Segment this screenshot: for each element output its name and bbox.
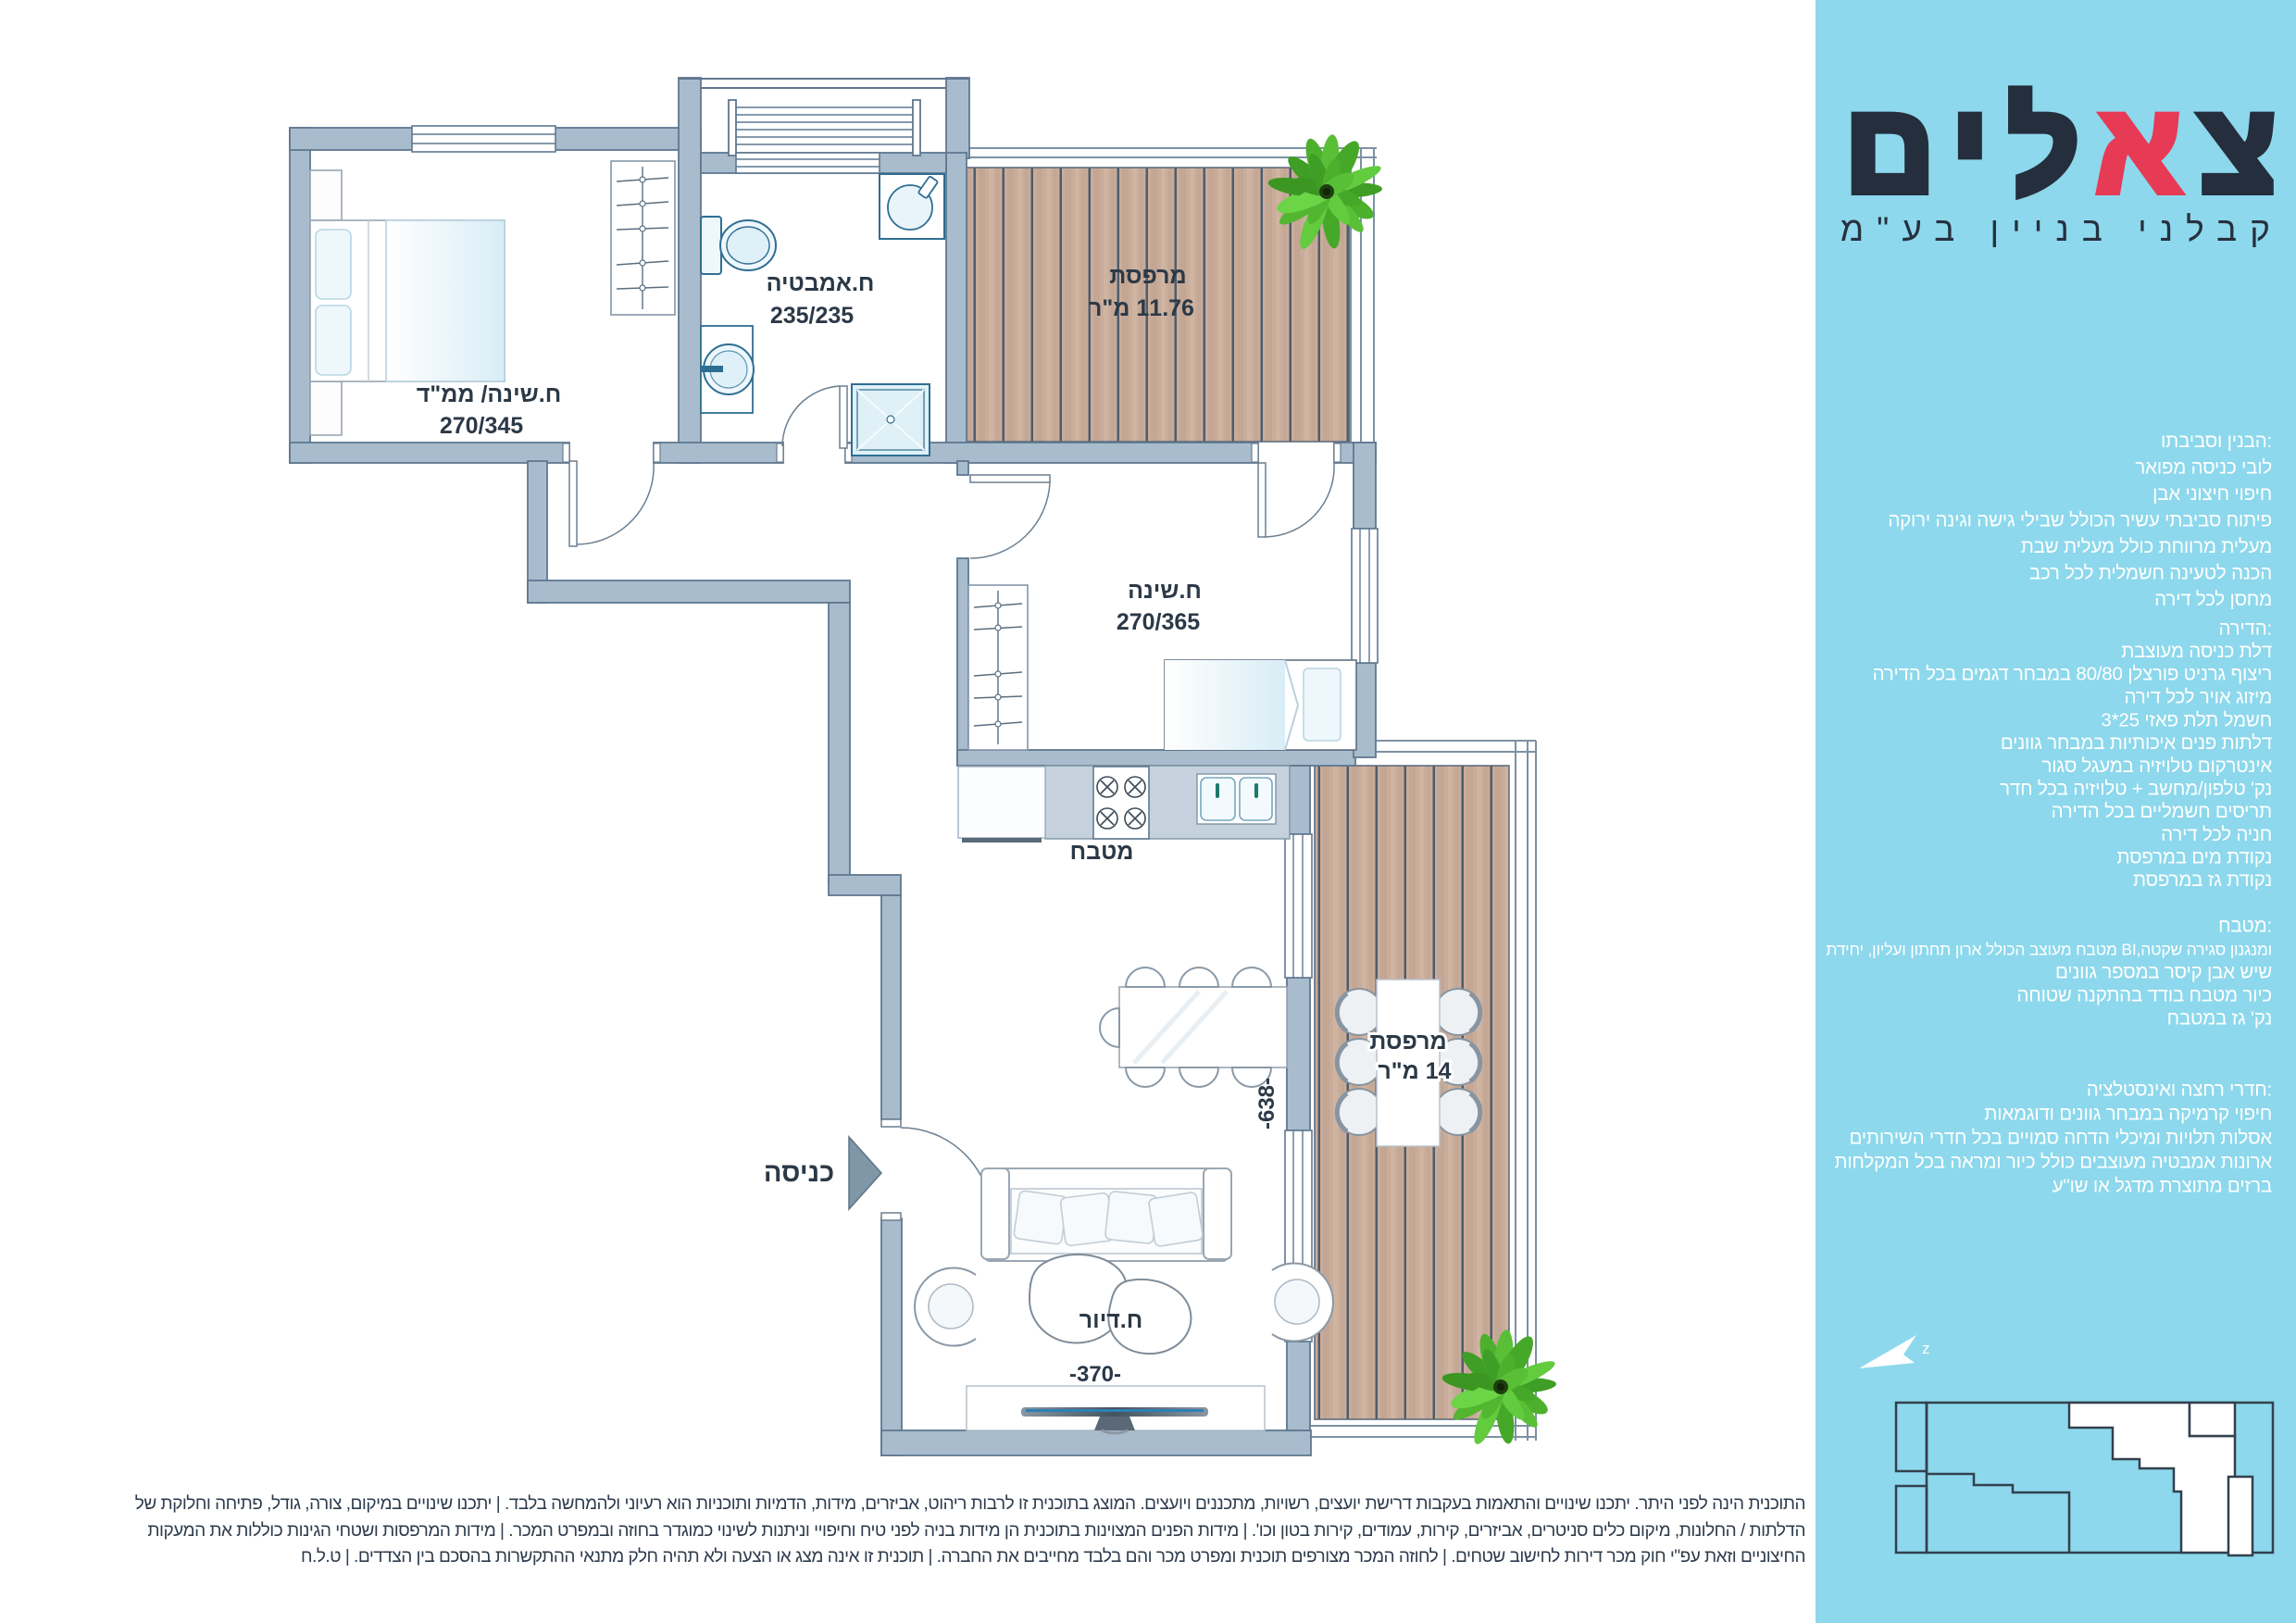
svg-text:החיצוניים וזאת עפ"י חוק מכר די: החיצוניים וזאת עפ"י חוק מכר דירות לחישוב… xyxy=(301,1547,1805,1567)
svg-text:-638-: -638- xyxy=(1254,1078,1279,1130)
svg-text:ריצוף גרניט פורצלן 80/80 במבחר: ריצוף גרניט פורצלן 80/80 במבחר דגמים בכל… xyxy=(1873,664,2272,685)
svg-text:הדירה:: הדירה: xyxy=(2218,618,2272,640)
svg-text:פיתוח סביבתי עשיר הכולל שבילי: פיתוח סביבתי עשיר הכולל שבילי גישה וגינה… xyxy=(1888,510,2272,531)
svg-text:ח.שינה: ח.שינה xyxy=(1128,578,1202,604)
svg-text:11.76 מ"ר: 11.76 מ"ר xyxy=(1089,295,1194,321)
svg-text:דלתות פנים איכותיות במבחר גוונ: דלתות פנים איכותיות במבחר גוונים xyxy=(2001,732,2272,754)
svg-text:נק' גז במטבח: נק' גז במטבח xyxy=(2167,1008,2272,1030)
svg-text:מטבח: מטבח xyxy=(1070,839,1134,865)
svg-text:מחסן לכל דירה: מחסן לכל דירה xyxy=(2154,589,2272,610)
svg-text:כניסה: כניסה xyxy=(764,1158,834,1188)
svg-text:מטבח:: מטבח: xyxy=(2218,916,2272,937)
svg-text:מרפסת: מרפסת xyxy=(1109,263,1186,289)
svg-text:z: z xyxy=(1922,1340,1930,1357)
svg-text:שיש אבן קיסר במספר גוונים: שיש אבן קיסר במספר גוונים xyxy=(2055,962,2272,983)
svg-text:מטבח מעוצב הכולל ארון תחתון וע: מטבח מעוצב הכולל ארון תחתון ועליון, יחיד… xyxy=(1826,941,2272,959)
svg-text:ברזים מתוצרת מדגל או שו"ע: ברזים מתוצרת מדגל או שו"ע xyxy=(2053,1176,2272,1197)
svg-text:הבנין וסביבתו:: הבנין וסביבתו: xyxy=(2161,431,2272,452)
svg-text:ח.דיור: ח.דיור xyxy=(1079,1307,1143,1333)
svg-text:תריסים חשמליים בכל הדירה: תריסים חשמליים בכל הדירה xyxy=(2052,801,2272,822)
svg-text:לובי כניסה מפואר: לובי כניסה מפואר xyxy=(2135,457,2272,479)
svg-text:ח.אמבטיה: ח.אמבטיה xyxy=(767,270,875,296)
svg-text:ח.שינה/ ממ"ד: ח.שינה/ ממ"ד xyxy=(417,381,561,407)
svg-text:חדרי רחצה ואינסטלציה:: חדרי רחצה ואינסטלציה: xyxy=(2087,1080,2272,1101)
svg-text:נק' טלפון/מחשב + טלויזיה בכל ח: נק' טלפון/מחשב + טלויזיה בכל חדר xyxy=(2000,779,2272,800)
svg-text:14 מ"ר: 14 מ"ר xyxy=(1378,1058,1451,1084)
svg-text:מרפסת: מרפסת xyxy=(1369,1029,1446,1055)
svg-text:אינטרקום טלויזיה במעגל סגור: אינטרקום טלויזיה במעגל סגור xyxy=(2041,755,2272,777)
svg-text:נקודת גז במרפסת: נקודת גז במרפסת xyxy=(2133,869,2272,891)
svg-text:דלת כניסה מעוצבת: דלת כניסה מעוצבת xyxy=(2121,641,2272,662)
svg-text:מיזוג אויר לכל דירה: מיזוג אויר לכל דירה xyxy=(2125,687,2272,708)
svg-text:נקודת מים במרפסת: נקודת מים במרפסת xyxy=(2116,847,2272,868)
svg-text:הכנה לטעינה חשמלית לכל רכב: הכנה לטעינה חשמלית לכל רכב xyxy=(2029,563,2272,584)
svg-text:צאלים: צאלים xyxy=(1844,78,2295,218)
svg-text:-370-: -370- xyxy=(1069,1362,1121,1387)
svg-text:התוכנית הינה לפני היתר. יתכנו: התוכנית הינה לפני היתר. יתכנו שינויים וה… xyxy=(135,1494,1805,1514)
svg-text:הדלתות / החלונות, מיקום כלים ס: הדלתות / החלונות, מיקום כלים סניטרים, אב… xyxy=(147,1521,1805,1541)
svg-text:חשמל תלת פאזי 25*3: חשמל תלת פאזי 25*3 xyxy=(2101,710,2272,731)
svg-text:קבלני בניין בע"מ: קבלני בניין בע"מ xyxy=(1841,210,2283,248)
svg-text:ארונות אמבטיה מעוצבים כולל כיו: ארונות אמבטיה מעוצבים כולל כיור ומראה בכ… xyxy=(1834,1152,2272,1173)
svg-text:270/365: 270/365 xyxy=(1117,609,1200,635)
svg-text:מעלית מרווחת כולל מעלית שבת: מעלית מרווחת כולל מעלית שבת xyxy=(2021,536,2272,557)
svg-text:אסלות תלויות ומיכלי הדחה סמויי: אסלות תלויות ומיכלי הדחה סמויים בכל חדרי… xyxy=(1849,1128,2272,1149)
svg-text:חיפוי קרמיקה במבחר גוונים ודוג: חיפוי קרמיקה במבחר גוונים ודוגמאות xyxy=(1984,1104,2272,1125)
svg-text:חניה לכל דירה: חניה לכל דירה xyxy=(2161,824,2272,845)
svg-text:270/345: 270/345 xyxy=(440,413,523,439)
svg-text:כיור מטבח בודד בהתקנה שטוחה: כיור מטבח בודד בהתקנה שטוחה xyxy=(2016,985,2272,1006)
svg-text:235/235: 235/235 xyxy=(770,303,854,329)
svg-text:חיפוי חיצוני אבן: חיפוי חיצוני אבן xyxy=(2152,483,2272,505)
